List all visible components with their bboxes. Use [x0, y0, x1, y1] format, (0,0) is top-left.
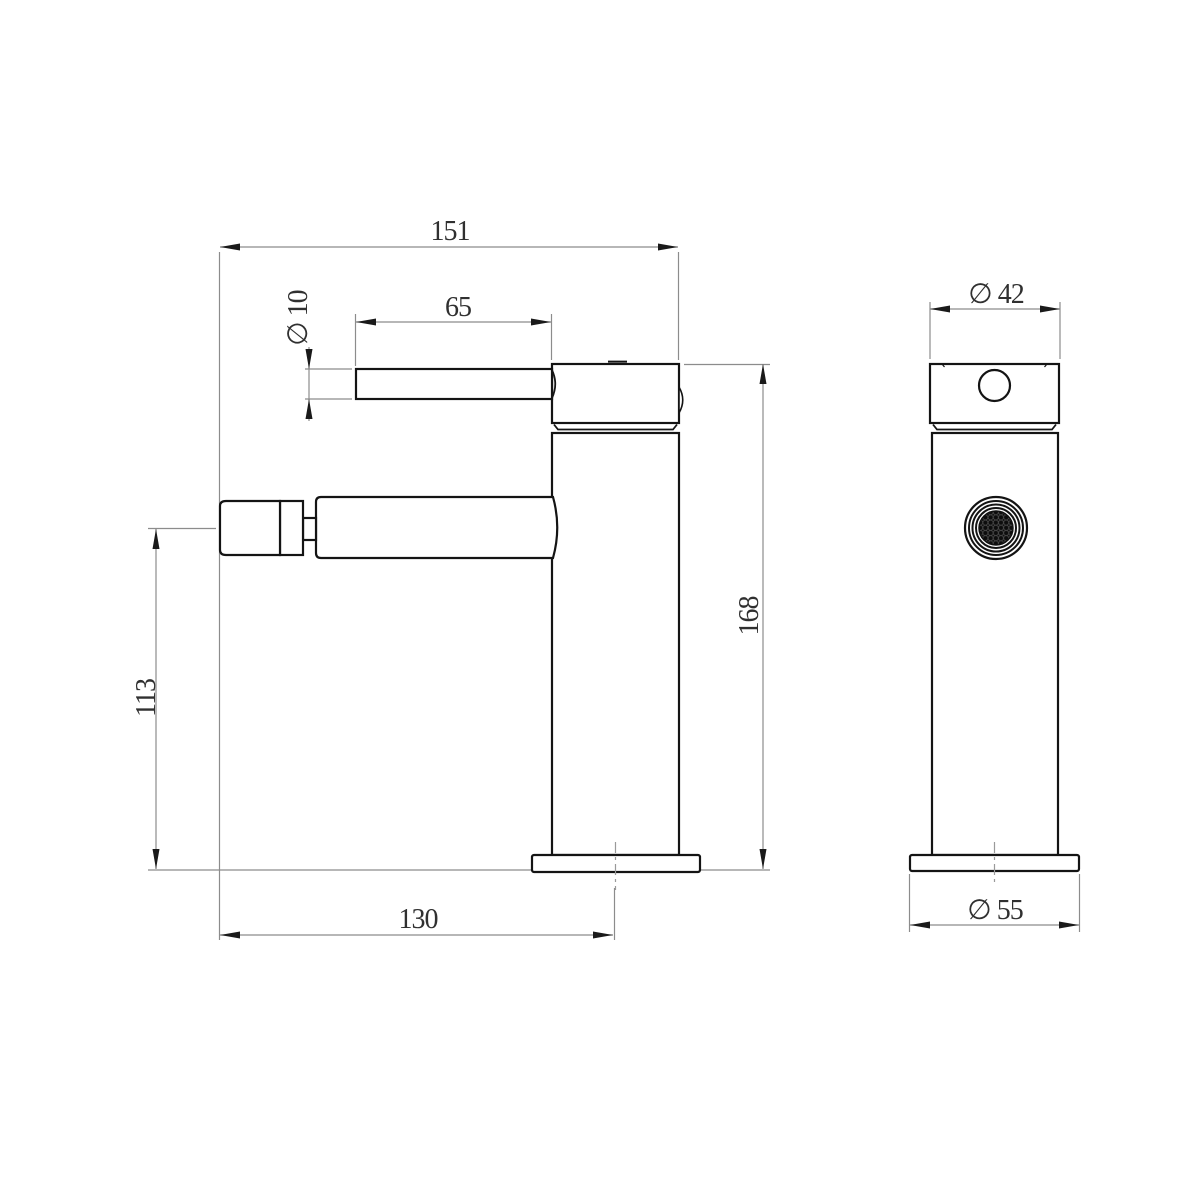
aerator-tip: [220, 501, 280, 555]
arrow-130-right: [593, 932, 613, 939]
technical-drawing-svg: 151 65 ∅ 10 113 168 130 ∅ 42 ∅ 55: [0, 0, 1200, 1200]
label-lever-diameter: ∅ 10: [283, 290, 314, 345]
neck-trim-ring: [554, 425, 677, 430]
aerator-ring: [280, 501, 303, 555]
arrow-168-bottom: [760, 849, 767, 869]
label-lever-length: 65: [445, 292, 471, 323]
side-view: [220, 362, 700, 872]
tap-head: [552, 364, 679, 423]
arrow-113-bottom: [153, 849, 160, 869]
aerator-face: [965, 497, 1027, 559]
arrow-d42-right: [1040, 306, 1060, 313]
label-base-diameter: ∅ 55: [967, 895, 1022, 926]
arrow-d55-right: [1059, 922, 1079, 929]
drawing-sheet: 151 65 ∅ 10 113 168 130 ∅ 42 ∅ 55: [0, 0, 1200, 1200]
arrow-151-right: [658, 244, 678, 251]
arrow-151-left: [220, 244, 240, 251]
spout-tube: [316, 497, 557, 558]
arrow-d10-top: [306, 349, 313, 369]
arrow-d10-bottom: [306, 399, 313, 419]
neck-trim-ring-front: [933, 425, 1056, 430]
label-spout-reach: 130: [399, 904, 438, 935]
arrow-130-left: [220, 932, 240, 939]
label-body-diameter: ∅ 42: [968, 279, 1023, 310]
label-overall-width: 151: [431, 216, 470, 247]
label-total-height: 168: [734, 597, 765, 636]
front-view: [910, 364, 1079, 871]
arrow-65-right: [531, 319, 551, 326]
arrow-d55-left: [910, 922, 930, 929]
tap-body: [552, 433, 679, 855]
label-spout-height: 113: [131, 679, 162, 717]
arrow-113-top: [153, 529, 160, 549]
arrow-d42-left: [930, 306, 950, 313]
aerator-connector: [303, 518, 316, 540]
arrow-65-left: [356, 319, 376, 326]
arrow-168-top: [760, 364, 767, 384]
lever-end-circle: [979, 370, 1010, 401]
set-screw-bump: [679, 387, 683, 413]
aerator-mesh: [979, 511, 1013, 545]
lever-handle: [356, 369, 552, 399]
